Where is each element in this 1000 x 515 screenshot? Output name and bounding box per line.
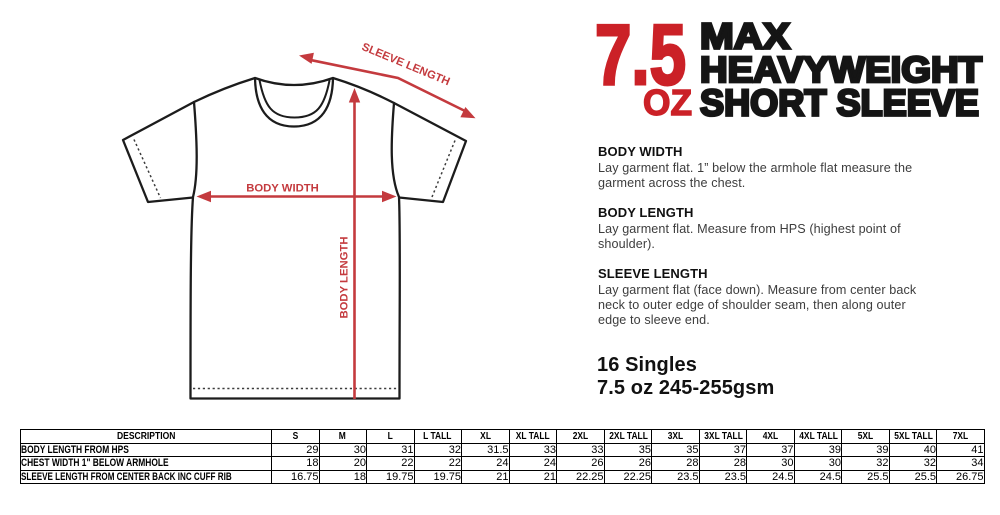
svg-text:OZ: OZ bbox=[643, 82, 692, 123]
svg-text:SHORT SLEEVE: SHORT SLEEVE bbox=[700, 82, 979, 123]
svg-text:BODY WIDTH: BODY WIDTH bbox=[246, 182, 319, 194]
svg-text:BODY LENGTH: BODY LENGTH bbox=[339, 236, 351, 318]
